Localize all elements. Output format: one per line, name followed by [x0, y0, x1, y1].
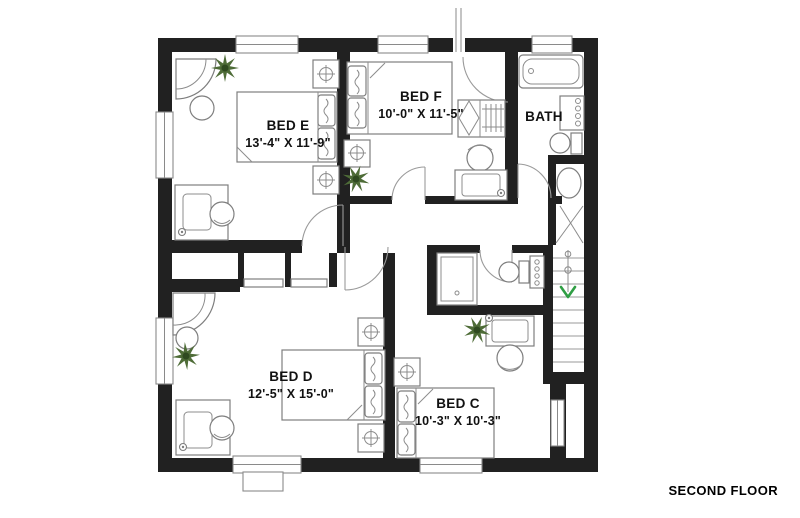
room-label-bath: BATH: [525, 108, 563, 126]
nightstand-lamp: [344, 140, 370, 167]
desk-with-chair: [455, 145, 507, 200]
door-bath: [518, 164, 551, 198]
room-name: BED E: [245, 117, 330, 135]
door-bed-f-upper: [463, 57, 508, 102]
room-name: BATH: [525, 108, 563, 126]
closet-bifold: [458, 100, 505, 137]
chair: [210, 416, 234, 440]
bed-c-furniture: [394, 315, 534, 459]
stairs-down-arrow-icon: [561, 250, 575, 297]
window-left-bed-e: [156, 112, 173, 178]
window-top-bed-e: [236, 36, 298, 53]
window-left-bed-d: [156, 318, 173, 384]
room-label-bed-d: BED D 12'-5" X 15'-0": [248, 368, 334, 402]
stairs: [553, 250, 584, 362]
desk-with-chair: [176, 400, 234, 455]
nightstand-lamp: [313, 166, 339, 194]
desk-with-chair: [486, 315, 535, 372]
vanity-sink: [560, 96, 584, 130]
room-label-bed-f: BED F 10'-0" X 11'-5": [378, 88, 463, 122]
door-bed-d: [345, 247, 388, 290]
nightstand-lamp: [358, 318, 384, 346]
bathtub-icon: [519, 55, 583, 88]
room-dimensions: 10'-0" X 11'-5": [378, 106, 463, 122]
room-name: BED C: [415, 395, 501, 413]
room-label-bed-c: BED C 10'-3" X 10'-3": [415, 395, 501, 429]
window-bottom-bed-d: [233, 456, 301, 491]
window-top-bed-f: [378, 36, 428, 53]
room-name: BED F: [378, 88, 463, 106]
plant-icon: [211, 54, 239, 82]
desk-with-chair: [175, 185, 234, 240]
nightstand-lamp: [394, 358, 420, 386]
corner-chair: [176, 59, 216, 120]
room-dimensions: 10'-3" X 10'-3": [415, 413, 501, 429]
room-label-bed-e: BED E 13'-4" X 11'-9": [245, 117, 330, 151]
nightstand-lamp: [313, 60, 339, 88]
room-name: BED D: [248, 368, 334, 386]
small-sink: [530, 256, 544, 288]
utility-closet: [556, 168, 583, 243]
window-top-bath: [532, 36, 572, 53]
bay-box: [243, 472, 283, 491]
door-bed-e: [302, 205, 343, 246]
room-dimensions: 13'-4" X 11'-9": [245, 135, 330, 151]
shower-icon: [437, 253, 477, 305]
nightstand-lamp: [358, 424, 384, 452]
water-heater: [557, 168, 581, 198]
toilet-icon: [499, 261, 529, 283]
door-bed-f: [392, 167, 425, 200]
floor-plan-drawing: [0, 0, 800, 518]
room-dimensions: 12'-5" X 15'-0": [248, 386, 334, 402]
corner-chair: [173, 293, 215, 349]
window-right-bed-c: [551, 400, 564, 446]
side-table: [190, 96, 214, 120]
ensuite-fixtures: [437, 253, 544, 305]
chair: [210, 202, 234, 226]
floor-title: SECOND FLOOR: [600, 483, 778, 498]
vent-pipe: [453, 8, 465, 52]
chair: [467, 145, 493, 171]
floor-plan: BED E 13'-4" X 11'-9" BED F 10'-0" X 11'…: [0, 0, 800, 518]
toilet-icon: [550, 133, 582, 154]
